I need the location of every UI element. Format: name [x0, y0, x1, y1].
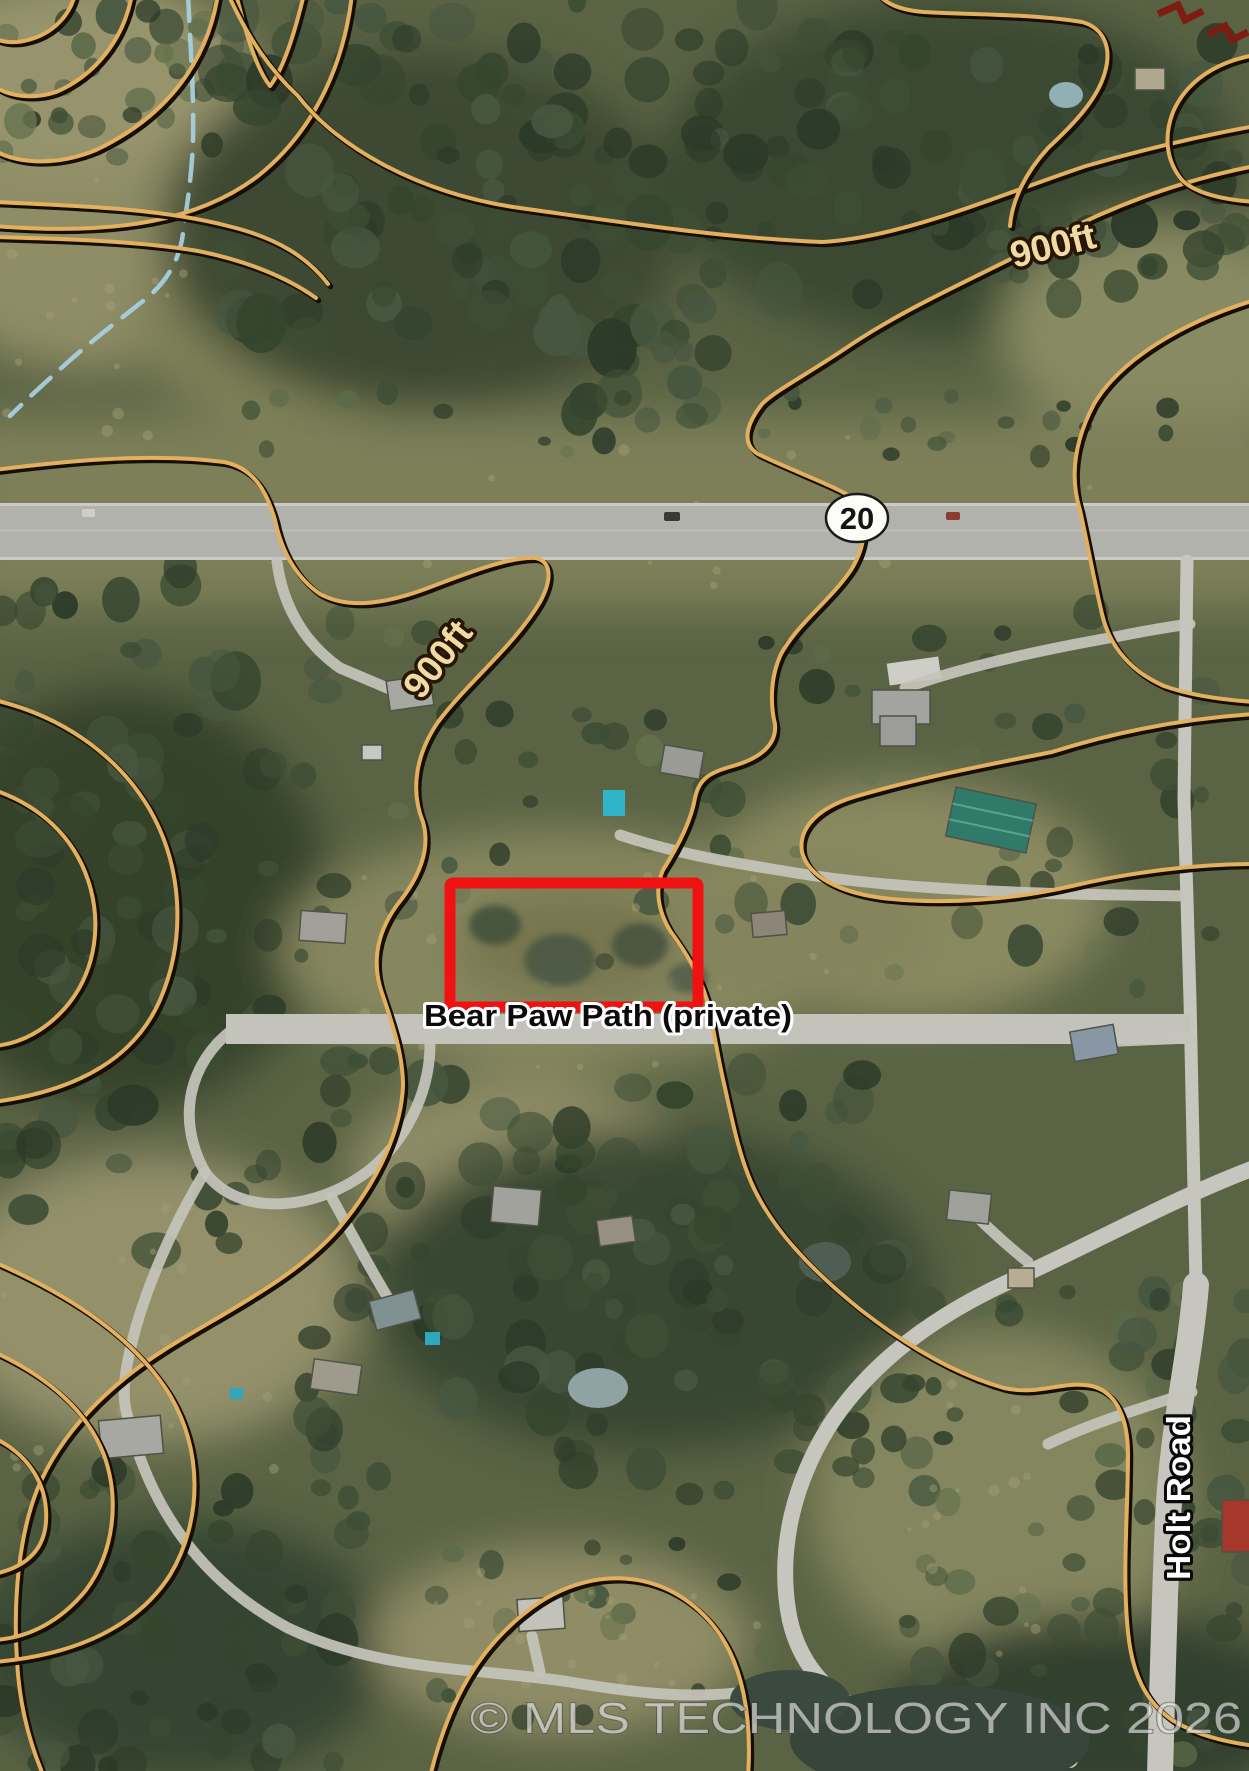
- grass-speckle: [106, 301, 116, 311]
- tree-blob: [429, 3, 475, 42]
- vehicle: [664, 512, 680, 521]
- tree-blob: [604, 128, 632, 159]
- tree-blob: [786, 163, 827, 199]
- grass-speckle: [176, 1263, 188, 1275]
- house: [310, 1359, 362, 1395]
- grass-speckle: [1024, 1622, 1029, 1627]
- tree-blob: [1046, 827, 1073, 858]
- tree-blob: [221, 1473, 253, 1509]
- tree-blob: [256, 1150, 281, 1181]
- grass-speckle: [946, 1401, 953, 1408]
- tree-blob: [758, 636, 774, 650]
- tree-blob: [554, 53, 592, 90]
- tree-blob: [669, 1537, 686, 1551]
- grass-speckle: [824, 969, 830, 975]
- tree-blob: [510, 231, 553, 268]
- tree-blob: [759, 54, 781, 73]
- tree-blob: [330, 1109, 351, 1127]
- grass-speckle: [1087, 485, 1093, 491]
- tree-blob: [1018, 202, 1043, 228]
- grass-speckle: [652, 1061, 659, 1068]
- tree-blob: [538, 437, 551, 446]
- grass-speckle: [619, 1633, 627, 1641]
- tree-blob: [369, 1047, 400, 1075]
- tree-blob: [553, 1436, 575, 1462]
- tree-blob: [933, 1431, 953, 1445]
- tree-blob: [686, 1125, 730, 1175]
- tree-blob: [525, 1391, 569, 1436]
- tree-blob: [476, 52, 509, 88]
- grass-speckle: [13, 253, 18, 258]
- grass-speckle: [632, 903, 640, 911]
- tree-blob: [799, 669, 835, 704]
- tree-blob: [556, 1137, 596, 1170]
- tree-blob: [338, 1485, 359, 1509]
- tree-blob: [531, 104, 573, 138]
- tree-blob: [884, 30, 906, 47]
- tree-blob: [154, 43, 173, 63]
- grass-speckle: [753, 1621, 761, 1629]
- tree-blob: [684, 125, 720, 163]
- tree-blob: [106, 1154, 132, 1174]
- tree-blob: [331, 227, 380, 269]
- tree-blob: [1030, 445, 1050, 468]
- tree-blob: [605, 1299, 623, 1319]
- tree-blob: [694, 335, 731, 371]
- tree-blob: [793, 1393, 825, 1426]
- tree-blob: [1008, 924, 1043, 966]
- tree-blob: [219, 773, 247, 802]
- tree-blob: [303, 1122, 337, 1163]
- tree-blob: [587, 318, 636, 377]
- tree-blob: [298, 1326, 331, 1350]
- grass-speckle: [845, 435, 850, 440]
- tree-blob: [884, 964, 904, 980]
- tree-blob: [1064, 704, 1085, 724]
- grass-speckle: [606, 1596, 614, 1604]
- grass-speckle: [996, 1650, 1003, 1657]
- tree-blob: [130, 1691, 149, 1706]
- tree-blob: [337, 390, 359, 408]
- tree-blob: [15, 670, 35, 694]
- tree-blob: [377, 380, 398, 405]
- tree-blob: [204, 649, 241, 692]
- tree-blob: [947, 1407, 964, 1422]
- tree-blob: [779, 1090, 807, 1122]
- tree-blob: [682, 292, 717, 323]
- tree-blob: [436, 211, 473, 246]
- highway-edge-line-top: [0, 503, 1249, 506]
- tree-blob: [486, 215, 508, 238]
- grass-speckle: [362, 875, 368, 881]
- swimming-pool: [425, 1332, 440, 1345]
- tree-blob: [15, 903, 37, 922]
- grass-speckle: [567, 1659, 576, 1668]
- tree-blob: [798, 1163, 838, 1211]
- highway-shield-number: 20: [840, 501, 874, 536]
- grass-speckle: [476, 1600, 482, 1606]
- tree-blob: [795, 78, 825, 108]
- highway-20-shield: 20: [826, 494, 888, 542]
- tree-blob: [411, 197, 435, 223]
- tree-blob: [832, 1456, 859, 1476]
- grass-speckle: [588, 1590, 594, 1596]
- tree-blob: [585, 1273, 603, 1293]
- tree-blob: [116, 896, 142, 919]
- tree-blob: [223, 1641, 248, 1671]
- grass-speckle: [929, 1484, 937, 1492]
- tree-blob: [221, 1709, 250, 1735]
- tree-blob: [113, 1561, 131, 1583]
- tree-blob: [387, 185, 414, 215]
- tree-blob: [1056, 400, 1070, 411]
- tree-blob: [468, 290, 512, 330]
- tree-blob: [1156, 732, 1178, 749]
- tree-blob: [1104, 907, 1139, 936]
- tree-blob: [293, 1396, 332, 1437]
- tree-blob: [260, 752, 287, 779]
- tree-blob: [388, 802, 410, 819]
- tree-blob: [498, 1361, 539, 1393]
- tree-blob: [80, 1480, 100, 1499]
- tree-blob: [311, 1479, 331, 1496]
- tree-blob: [861, 771, 878, 785]
- grass-speckle: [1031, 1624, 1041, 1634]
- tree-blob: [372, 282, 396, 307]
- tree-blob: [289, 317, 324, 359]
- tree-blob: [1156, 398, 1179, 419]
- grass-speckle: [161, 1204, 171, 1214]
- tree-blob: [441, 857, 457, 874]
- tree-blob: [1012, 135, 1038, 166]
- tree-blob: [1067, 1495, 1095, 1521]
- tree-blob: [35, 584, 57, 606]
- house: [299, 910, 347, 943]
- grass-speckle: [165, 293, 170, 298]
- tree-blob: [757, 1361, 794, 1397]
- tree-blob: [471, 94, 500, 124]
- grass-speckle: [1023, 1472, 1031, 1480]
- grass-speckle: [716, 985, 722, 991]
- house: [1135, 68, 1165, 90]
- grass-speckle: [585, 1601, 589, 1605]
- tree-blob: [601, 271, 631, 299]
- tree-blob: [644, 709, 667, 731]
- tree-blob: [899, 1615, 916, 1628]
- tree-blob: [262, 1724, 296, 1758]
- tree-blob: [592, 427, 616, 454]
- grass-speckle: [0, 1292, 6, 1298]
- grass-speckle: [750, 875, 757, 882]
- tree-blob: [840, 925, 859, 943]
- tree-blob: [1200, 201, 1225, 224]
- tree-blob: [507, 1112, 553, 1153]
- grass-speckle: [434, 1601, 438, 1605]
- tree-blob: [945, 1569, 976, 1595]
- tree-blob: [699, 258, 726, 289]
- tree-blob: [694, 1206, 732, 1244]
- tree-blob: [875, 398, 892, 414]
- tree-blob: [994, 625, 1011, 640]
- grass-speckle: [102, 425, 114, 437]
- tree-blob: [1042, 410, 1060, 430]
- tree-blob: [1149, 1288, 1170, 1312]
- tree-blob: [475, 149, 503, 179]
- tree-blob: [201, 132, 223, 158]
- tree-blob: [123, 107, 142, 123]
- tree-blob: [572, 707, 592, 722]
- tree-blob: [912, 625, 947, 652]
- tree-blob: [983, 1597, 1019, 1626]
- grass-speckle: [955, 1488, 959, 1492]
- tree-blob: [845, 685, 861, 697]
- tree-blob: [925, 1377, 941, 1396]
- vehicle: [82, 509, 95, 517]
- tree-blob: [635, 407, 661, 432]
- tree-blob: [441, 1546, 464, 1563]
- tree-blob: [1063, 1553, 1086, 1571]
- tree-blob: [254, 919, 283, 952]
- grass-speckle: [536, 1065, 540, 1069]
- tree-blob: [882, 448, 899, 461]
- tree-blob: [193, 79, 215, 102]
- tree-blob: [78, 1709, 118, 1755]
- tree-blob: [334, 1284, 375, 1322]
- tree-blob: [1206, 1615, 1242, 1642]
- tree-blob: [317, 873, 352, 898]
- house: [947, 1190, 992, 1224]
- grass-speckle: [648, 560, 652, 564]
- tree-blob: [1201, 926, 1219, 941]
- tree-blob: [242, 401, 260, 421]
- tree-blob: [236, 293, 286, 353]
- tree-blob: [693, 61, 725, 86]
- grass-speckle: [143, 430, 153, 440]
- aerial-map-svg: 20 900ft 900ft Bear Paw Path (private) H…: [0, 0, 1249, 1771]
- shed: [1008, 1268, 1034, 1288]
- red-roof-building: [1222, 1500, 1249, 1552]
- tree-blob: [910, 1647, 945, 1687]
- grass-speckle: [263, 1392, 273, 1402]
- tree-blob: [626, 1447, 666, 1490]
- tree-blob: [1032, 713, 1063, 740]
- grass-speckle: [150, 1249, 156, 1255]
- tree-blob: [233, 89, 281, 126]
- tree-blob: [15, 820, 66, 858]
- tree-blob: [949, 1633, 987, 1678]
- tree-blob: [920, 129, 952, 162]
- grass-speckle: [114, 364, 120, 370]
- tree-blob: [706, 1288, 727, 1312]
- pond: [1049, 82, 1083, 108]
- tree-blob: [723, 134, 769, 174]
- grass-speckle: [168, 1423, 174, 1429]
- highway-edge-line-bottom: [0, 557, 1249, 560]
- tree-blob: [1158, 425, 1173, 442]
- tree-blob: [872, 146, 896, 172]
- tree-blob: [502, 84, 526, 105]
- tree-blob: [713, 1481, 734, 1500]
- tree-blob: [489, 843, 510, 867]
- tree-blob: [996, 1294, 1017, 1313]
- tree-blob: [625, 1313, 669, 1359]
- grass-speckle: [179, 269, 188, 278]
- tree-blob: [259, 440, 274, 458]
- tree-blob: [213, 1690, 235, 1709]
- grass-speckle: [988, 1485, 999, 1496]
- tree-blob: [16, 1128, 53, 1159]
- tree-blob: [927, 436, 946, 451]
- tree-blob: [207, 929, 227, 944]
- tree-blob: [614, 390, 631, 405]
- tree-blob: [269, 389, 289, 408]
- tree-blob: [561, 238, 601, 283]
- tree-blob: [197, 1703, 218, 1721]
- grass-speckle: [423, 559, 432, 568]
- tree-blob: [326, 606, 355, 640]
- grass-speckle: [488, 475, 495, 482]
- tree-blob: [16, 868, 55, 906]
- tree-blob: [1118, 1317, 1157, 1353]
- tree-blob: [970, 47, 1004, 84]
- grass-speckle: [426, 935, 436, 945]
- tree-blob: [437, 147, 460, 164]
- tree-blob: [455, 739, 477, 765]
- tree-blob: [4, 103, 37, 139]
- tree-blob: [797, 18, 832, 52]
- tree-blob: [486, 701, 514, 728]
- tree-blob: [507, 23, 541, 64]
- house: [660, 745, 704, 780]
- tree-blob: [149, 1718, 171, 1737]
- tree-blob: [595, 953, 614, 969]
- tree-blob: [208, 1520, 234, 1543]
- tree-blob: [181, 1003, 210, 1029]
- vehicle: [946, 512, 960, 520]
- grass-speckle: [182, 1378, 190, 1386]
- tree-blob: [205, 1211, 228, 1238]
- grass-speckle: [15, 359, 22, 366]
- grass-speckle: [515, 1634, 526, 1645]
- grass-speckle: [933, 1512, 941, 1520]
- grass-speckle: [72, 298, 78, 304]
- tree-blob: [998, 416, 1015, 428]
- grass-speckle: [476, 1568, 485, 1577]
- grass-speckle: [654, 1662, 659, 1667]
- tree-blob: [49, 1028, 83, 1064]
- tree-blob: [258, 861, 279, 877]
- grass-speckle: [269, 1464, 279, 1474]
- tree-blob: [673, 340, 694, 362]
- tree-blob: [680, 1305, 713, 1334]
- grass-speckle: [668, 1679, 675, 1686]
- tree-blob: [1173, 210, 1200, 230]
- tree-blob: [1134, 1499, 1156, 1525]
- tree-blob: [1095, 1443, 1126, 1467]
- tree-blob: [625, 57, 670, 102]
- tree-blob: [433, 404, 453, 419]
- tree-blob: [620, 1555, 633, 1565]
- tree-blob: [1104, 270, 1139, 303]
- tree-blob: [207, 1729, 233, 1759]
- grass-speckle: [1011, 1405, 1021, 1415]
- tree-blob: [518, 751, 538, 768]
- tree-blob: [527, 1235, 573, 1281]
- tree-blob: [714, 1255, 733, 1275]
- tree-blob: [1059, 1285, 1075, 1299]
- tree-blob: [595, 1137, 643, 1192]
- grass-speckle: [13, 1463, 21, 1471]
- tree-blob: [173, 713, 203, 737]
- tree-blob: [392, 25, 421, 53]
- tree-blob: [814, 644, 831, 663]
- house: [751, 911, 787, 938]
- tree-blob: [1084, 939, 1106, 962]
- pond: [568, 1368, 628, 1408]
- grass-speckle: [947, 1379, 957, 1389]
- tree-blob: [1059, 1391, 1088, 1414]
- tree-blob: [1194, 787, 1209, 803]
- tree-blob: [676, 403, 708, 429]
- tree-blob: [102, 577, 140, 623]
- tree-blob: [755, 1639, 779, 1664]
- tree-blob: [833, 191, 862, 225]
- grass-speckle: [809, 953, 817, 961]
- map-canvas[interactable]: 20 900ft 900ft Bear Paw Path (private) H…: [0, 0, 1249, 1771]
- tree-blob: [555, 1175, 586, 1206]
- tree-blob: [951, 905, 983, 939]
- tree-blob: [995, 713, 1016, 729]
- tree-blob: [437, 1377, 477, 1420]
- tree-blob: [843, 40, 869, 69]
- grass-speckle: [151, 277, 159, 285]
- tree-blob: [71, 32, 96, 59]
- tree-blob: [755, 262, 802, 318]
- grass-speckle: [691, 1593, 697, 1599]
- tree-blob: [513, 1274, 539, 1301]
- tree-blob: [879, 78, 911, 114]
- tree-blob: [1047, 1614, 1080, 1646]
- tree-blob: [560, 446, 573, 457]
- tree-blob: [245, 1663, 273, 1684]
- tree-blob: [167, 1589, 185, 1602]
- tree-blob: [790, 1131, 809, 1152]
- grass-speckle: [46, 311, 54, 319]
- tree-blob: [901, 417, 917, 433]
- tree-blob: [829, 1214, 865, 1246]
- grass-speckle: [921, 1520, 929, 1528]
- tree-blob: [1187, 254, 1219, 281]
- tree-blob: [411, 1243, 431, 1262]
- tree-blob: [880, 1373, 919, 1403]
- tree-blob: [1046, 279, 1081, 319]
- grass-speckle: [463, 1618, 474, 1629]
- tree-blob: [667, 365, 702, 400]
- tree-blob: [1071, 1597, 1089, 1612]
- tree-blob: [614, 1073, 652, 1101]
- house: [596, 1216, 635, 1247]
- grass-speckle: [1008, 1477, 1020, 1489]
- house: [98, 1415, 163, 1458]
- tree-blob: [1130, 979, 1146, 998]
- tree-blob: [797, 109, 840, 150]
- tree-blob: [448, 276, 470, 302]
- tree-blob: [78, 115, 106, 138]
- grass-speckle: [927, 1563, 938, 1574]
- grass-speckle: [907, 1527, 912, 1532]
- tree-blob: [185, 823, 219, 860]
- tree-blob: [860, 416, 881, 441]
